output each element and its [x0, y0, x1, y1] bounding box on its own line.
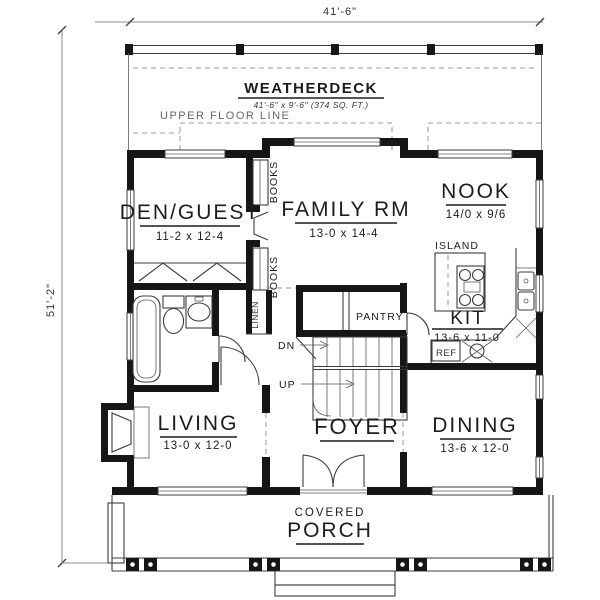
width-dimension-label: 41'-6"	[323, 6, 357, 18]
window	[294, 138, 380, 146]
dining-size: 13-6 x 12-0	[440, 443, 509, 455]
window	[432, 487, 513, 495]
den-closet	[133, 263, 246, 281]
room-kitchen: KIT 13-6 x 11-0	[432, 308, 503, 344]
burner	[473, 270, 484, 281]
room-living: LIVING 13-0 x 12-0	[158, 412, 239, 452]
window	[165, 150, 225, 158]
window	[536, 457, 543, 478]
kitchen-sink	[518, 292, 534, 310]
upper-floor-line-label: UPPER FLOOR LINE	[160, 110, 290, 122]
entry-doors	[300, 455, 367, 493]
entry-door-swing	[303, 455, 333, 487]
deck-post	[125, 44, 133, 55]
closet-door-chevron	[193, 263, 241, 281]
den-size: 11-2 x 12-4	[156, 231, 224, 243]
window	[536, 375, 543, 399]
hearth	[134, 407, 149, 458]
room-family: FAMILY RM 13-0 x 14-4	[281, 198, 410, 240]
kitchen: ISLAND REF	[407, 240, 536, 363]
deck-post	[427, 44, 435, 55]
burner	[473, 295, 484, 306]
books-upper-label: BOOKS	[268, 161, 280, 203]
floorplan-drawing: 41'-6" 51'-2" WEATHERDECK 41'-6" x 9'-6"…	[0, 0, 600, 600]
pantry-label: PANTRY	[356, 311, 404, 323]
living-label: LIVING	[158, 412, 239, 435]
room-foyer: FOYER	[314, 414, 400, 441]
window	[158, 487, 247, 495]
kitchen-door-swing	[407, 313, 429, 335]
nook-size: 14/0 x 9/6	[446, 209, 507, 221]
kitchen-sink	[518, 272, 534, 290]
firebox	[112, 413, 131, 452]
den-label: DEN/GUEST	[120, 201, 261, 224]
porch-step	[275, 571, 395, 585]
kitchen-label: KIT	[450, 308, 486, 329]
toilet-tank	[163, 296, 184, 308]
counter	[431, 248, 516, 363]
room-nook: NOOK 14/0 x 9/6	[441, 180, 511, 221]
kitchen-size: 13-6 x 11-0	[434, 332, 500, 344]
nook-label: NOOK	[441, 180, 511, 203]
hall-door-swing	[221, 347, 259, 385]
height-dimension-label: 51'-2"	[45, 283, 57, 317]
family-label: FAMILY RM	[281, 198, 410, 221]
floorplan-sheet: 41'-6" 51'-2" WEATHERDECK 41'-6" x 9'-6"…	[0, 0, 600, 600]
bathroom	[133, 296, 245, 382]
linen-label: LINEN	[250, 301, 260, 329]
weatherdeck-size-label: 41'-6" x 9'-6" (374 SQ. FT.)	[253, 100, 368, 110]
bathroom-sink	[188, 303, 210, 321]
weatherdeck-label: WEATHERDECK	[244, 80, 378, 97]
ref-label: REF	[436, 348, 457, 359]
porch-side-step	[108, 503, 124, 563]
room-porch: COVERED PORCH	[287, 507, 373, 544]
toilet	[164, 309, 184, 334]
porch-covered-label: COVERED	[295, 507, 366, 519]
room-dining: DINING 13-6 x 12-0	[432, 414, 518, 455]
living-size: 13-0 x 12-0	[163, 440, 232, 452]
family-size: 13-0 x 14-4	[309, 228, 378, 240]
bookshelf: BOOKS BOOKS	[253, 160, 280, 298]
stairs-dn-label: DN	[278, 340, 295, 352]
deck-post	[331, 44, 339, 55]
books-lower-label: BOOKS	[268, 256, 280, 298]
window	[536, 180, 543, 228]
burner	[460, 270, 471, 281]
entry-door-swing	[333, 455, 364, 487]
window	[536, 275, 543, 312]
window	[438, 150, 512, 158]
porch-posts	[126, 558, 551, 571]
stairs-up-label: UP	[279, 379, 296, 391]
porch-step	[275, 585, 395, 596]
deck-post	[236, 44, 244, 55]
fireplace	[112, 407, 149, 458]
island-label: ISLAND	[435, 240, 479, 252]
prep-sink	[470, 344, 484, 358]
burner	[460, 295, 471, 306]
porch-label: PORCH	[287, 519, 373, 542]
foyer-label: FOYER	[314, 414, 400, 439]
weatherdeck: WEATHERDECK 41'-6" x 9'-6" (374 SQ. FT.)…	[125, 44, 543, 150]
room-den: DEN/GUEST 11-2 x 12-4	[120, 201, 261, 243]
closet-door-chevron	[139, 263, 187, 281]
dining-label: DINING	[432, 414, 518, 437]
